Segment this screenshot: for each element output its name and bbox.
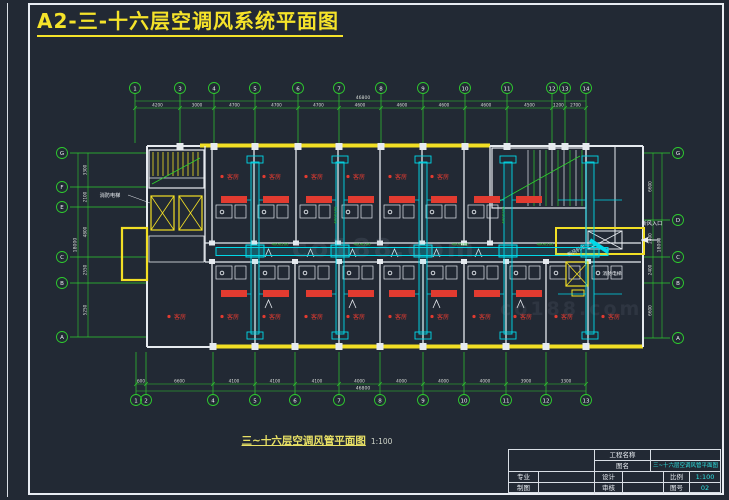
- grid-bubble-label: A: [60, 335, 64, 341]
- dim-text: 4600: [355, 103, 366, 108]
- grid-bubble-label: 1: [133, 86, 137, 92]
- column: [292, 259, 298, 264]
- room-mark: [346, 175, 349, 178]
- fan-coil-unit: [348, 196, 374, 203]
- room-mark: [346, 315, 349, 318]
- fan-coil-unit: [431, 290, 457, 297]
- grid-bubble-label: 12: [549, 86, 556, 92]
- project-name-value: [651, 450, 720, 461]
- dim-text: 4100: [229, 379, 240, 384]
- duct-size-label: 400X200: [333, 206, 338, 224]
- grid-bubble-label: 12: [543, 398, 550, 404]
- bathroom: [403, 205, 414, 218]
- fan-coil-unit: [474, 196, 500, 203]
- main-supply-duct: [216, 248, 608, 256]
- room-label: 客房: [174, 313, 186, 321]
- fixture: [472, 271, 476, 275]
- grid-bubble-label: 6: [293, 398, 297, 404]
- room-mark: [167, 315, 170, 318]
- column: [377, 343, 384, 350]
- room-label: 客房: [353, 173, 365, 181]
- dim-text: 4000: [396, 379, 407, 384]
- dim-text: 4600: [481, 103, 492, 108]
- column: [210, 343, 217, 350]
- grid-bubble-label: B: [676, 281, 680, 287]
- bathroom: [446, 266, 457, 279]
- room-label: 客房: [437, 173, 449, 181]
- room-mark: [304, 175, 307, 178]
- grid-bubble-label: 11: [503, 398, 510, 404]
- sheet-number-label: 图号: [664, 483, 690, 494]
- dim-text: 3900: [521, 379, 532, 384]
- fixture: [304, 210, 308, 214]
- bathroom: [277, 205, 288, 218]
- grid-bubble-label: 10: [461, 398, 468, 404]
- column: [378, 143, 385, 150]
- room-label: 客房: [311, 173, 323, 181]
- duct-junction: [499, 245, 517, 257]
- dim-text: 6600: [647, 181, 652, 192]
- fixture: [554, 271, 558, 275]
- dim-text: 4000: [480, 379, 491, 384]
- dim-text: 4500: [524, 103, 535, 108]
- grid-bubble-label: F: [60, 185, 63, 191]
- column: [583, 343, 590, 350]
- bathroom: [318, 266, 329, 279]
- column: [292, 343, 299, 350]
- grid-bubble-label: 9: [421, 398, 425, 404]
- drawing-name-value: 三~十六层空调风管平面图: [651, 461, 720, 472]
- specialty-value: [539, 472, 595, 483]
- dim-text: 4200: [152, 103, 163, 108]
- dim-text: 4700: [313, 103, 324, 108]
- room-mark: [554, 315, 557, 318]
- dim-total: 46800: [356, 95, 371, 101]
- room-mark: [262, 315, 265, 318]
- dim-total: 46800: [356, 386, 371, 392]
- column: [377, 259, 383, 264]
- drawing-sheet: A2-三-十六层空调风系统平面图 13456789101112131412456…: [0, 0, 729, 500]
- room-label: 客房: [311, 313, 323, 321]
- grid-bubble-label: 9: [421, 86, 425, 92]
- designer-label: 设计: [595, 472, 623, 483]
- column: [336, 143, 343, 150]
- grid-bubble-label: 13: [583, 398, 590, 404]
- bathroom: [361, 205, 372, 218]
- bathroom: [487, 266, 498, 279]
- room-mark: [220, 175, 223, 178]
- drafter-value: [539, 483, 595, 494]
- room-mark: [430, 315, 433, 318]
- reviewer-label: 审核: [595, 483, 623, 494]
- room-mark: [262, 175, 265, 178]
- grid-bubble-label: 13: [562, 86, 569, 92]
- dim-text: 4700: [271, 103, 282, 108]
- column: [543, 343, 550, 350]
- grid-bubble-label: 6: [296, 86, 300, 92]
- exterior-wall-accent: [212, 345, 643, 349]
- duct-size-label: 400X200: [271, 242, 289, 247]
- dim-text: 3300: [82, 164, 87, 175]
- room-mark: [304, 315, 307, 318]
- dim-text: 4700: [229, 103, 240, 108]
- project-name-label: 工程名称: [595, 450, 651, 461]
- bathroom: [278, 266, 289, 279]
- bathroom: [319, 205, 330, 218]
- bathroom: [529, 266, 540, 279]
- grid-bubble-label: 2: [144, 398, 148, 404]
- grid-bubble-label: 7: [337, 398, 341, 404]
- dim-text: 4800: [82, 226, 87, 237]
- column: [420, 343, 427, 350]
- column: [462, 143, 469, 150]
- sheet-number-value: 02: [690, 483, 720, 494]
- grid-bubble-label: 1: [134, 398, 138, 404]
- fan-coil-unit: [431, 196, 457, 203]
- left-annex-wall: [122, 228, 147, 280]
- room-label: 客房: [269, 173, 281, 181]
- duct-junction: [581, 245, 599, 257]
- grid-bubble-label: 4: [212, 86, 216, 92]
- room-label: 客房: [353, 313, 365, 321]
- break-mark: [265, 300, 272, 308]
- break-mark: [349, 300, 356, 308]
- drawing-name-label: 图名: [595, 461, 651, 472]
- grid-bubble-label: C: [676, 255, 680, 261]
- grid-bubble-label: A: [676, 336, 680, 342]
- room-label: 客房: [561, 313, 573, 321]
- fan-coil-unit: [306, 290, 332, 297]
- title-block: 工程名称 图名 三~十六层空调风管平面图 专业 设计 比例 1:100 制图 审…: [508, 449, 721, 493]
- fan-coil-unit: [516, 290, 542, 297]
- column: [562, 143, 569, 150]
- column: [461, 343, 468, 350]
- dim-text: 3300: [561, 379, 572, 384]
- room-mark: [601, 315, 604, 318]
- dim-text: 4000: [438, 379, 449, 384]
- exterior-wall-accent: [200, 144, 490, 148]
- column: [487, 241, 493, 246]
- dim-text: 5250: [82, 304, 87, 315]
- duct-size-label: 400X200: [451, 242, 469, 247]
- grid-bubble-label: 5: [253, 398, 257, 404]
- room-label: 客房: [608, 313, 620, 321]
- scale-value: 1:100: [690, 472, 720, 483]
- room-label: 客房: [227, 173, 239, 181]
- specialty-label: 专业: [509, 472, 539, 483]
- column: [252, 143, 259, 150]
- fixture: [262, 210, 266, 214]
- column: [295, 143, 302, 150]
- stair-left: [149, 150, 204, 188]
- column: [503, 343, 510, 350]
- titleblock-stamp-cell: [509, 450, 595, 472]
- dim-text: 4600: [397, 103, 408, 108]
- room-label: 客房: [395, 173, 407, 181]
- fan-coil-unit: [306, 196, 332, 203]
- grid-bubble-label: 10: [462, 86, 469, 92]
- room-label: 客房: [520, 313, 532, 321]
- room-label: 客房: [227, 313, 239, 321]
- fixture: [263, 271, 267, 275]
- fire-elevator-label: 消防电梯: [602, 270, 621, 277]
- grid-bubble-label: 8: [378, 398, 382, 404]
- grid-bubble-label: C: [60, 255, 64, 261]
- break-mark: [517, 300, 524, 308]
- room-mark: [472, 315, 475, 318]
- grid-bubble-label: 8: [379, 86, 383, 92]
- grid-bubble-label: G: [60, 151, 64, 157]
- dim-text: 2550: [82, 264, 87, 275]
- fan-coil-unit: [263, 290, 289, 297]
- dim-text: 2400: [647, 264, 652, 275]
- column: [377, 241, 383, 246]
- room-mark: [430, 175, 433, 178]
- column: [504, 143, 511, 150]
- grid-bubble-label: 3: [178, 86, 182, 92]
- fan-coil-unit: [389, 196, 415, 203]
- grid-bubble-label: 14: [583, 86, 590, 92]
- fixture: [220, 210, 224, 214]
- dim-text: 2100: [82, 191, 87, 202]
- column: [420, 143, 427, 150]
- duct-size-label: 400X200: [501, 206, 506, 224]
- dim-total: 18000: [72, 238, 78, 253]
- grid-bubble-label: 7: [337, 86, 341, 92]
- bathroom: [235, 266, 246, 279]
- dim-text: 4600: [439, 103, 450, 108]
- bathroom: [235, 205, 246, 218]
- grid-bubble-label: B: [60, 281, 64, 287]
- column: [209, 259, 215, 264]
- fixture: [346, 210, 350, 214]
- column: [543, 259, 549, 264]
- room-label: 客房: [437, 313, 449, 321]
- column: [252, 343, 259, 350]
- designer-value: [623, 472, 664, 483]
- column: [336, 343, 343, 350]
- room-mark: [220, 315, 223, 318]
- dim-text: 4100: [312, 379, 323, 384]
- fixture: [388, 271, 392, 275]
- fixture: [472, 210, 476, 214]
- dim-text: 4100: [270, 379, 281, 384]
- dim-text: 1200: [553, 103, 564, 108]
- column: [209, 241, 215, 246]
- column: [549, 143, 556, 150]
- bathroom: [362, 266, 373, 279]
- fan-coil-unit: [221, 290, 247, 297]
- room-label: 客房: [395, 313, 407, 321]
- fixture: [431, 271, 435, 275]
- dim-text: 6600: [174, 379, 185, 384]
- dim-text: 600: [137, 379, 145, 384]
- duct-junction: [246, 245, 264, 257]
- fan-coil-unit: [389, 290, 415, 297]
- grid-bubble-label: 11: [504, 86, 511, 92]
- room-mark: [513, 315, 516, 318]
- fan-coil-unit: [474, 290, 500, 297]
- duct-junction: [331, 245, 349, 257]
- drawing-caption: 三~十六层空调风管平面图1:100: [212, 429, 422, 448]
- duct-size-label: 400X200: [353, 242, 371, 247]
- caption-scale: 1:100: [371, 437, 393, 446]
- break-mark: [433, 300, 440, 308]
- caption-text: 三~十六层空调风管平面图: [242, 435, 366, 447]
- fresh-air-inlet-label: 新风入口: [642, 219, 663, 227]
- fixture: [596, 271, 600, 275]
- duct-junction: [414, 245, 432, 257]
- grid-bubble-label: G: [676, 151, 680, 157]
- equipment: [572, 290, 584, 296]
- column: [211, 143, 218, 150]
- column: [293, 241, 299, 246]
- dim-text: 2700: [570, 103, 581, 108]
- bathroom: [403, 266, 414, 279]
- fixture: [220, 271, 224, 275]
- fan-coil-unit: [263, 196, 289, 203]
- fire-elevator-label: 消防电梯: [100, 191, 121, 199]
- room-mark: [388, 315, 391, 318]
- floor-plan-canvas: 1345678910111213141245678910111213GFECBA…: [0, 0, 729, 500]
- fan-coil-unit: [516, 196, 542, 203]
- fixture: [430, 210, 434, 214]
- room-label: 客房: [269, 313, 281, 321]
- room-mark: [388, 175, 391, 178]
- fan-coil-unit: [221, 196, 247, 203]
- room-label: 客房: [479, 313, 491, 321]
- drafter-label: 制图: [509, 483, 539, 494]
- service-room: [149, 236, 204, 262]
- dim-text: 6600: [647, 305, 652, 316]
- fixture: [514, 271, 518, 275]
- reviewer-value: [623, 483, 664, 494]
- column: [177, 143, 184, 150]
- grid-bubble-label: D: [676, 218, 680, 224]
- grid-bubble-label: E: [60, 205, 64, 211]
- fixture: [303, 271, 307, 275]
- grid-bubble-label: 4: [211, 398, 215, 404]
- dim-text: 4000: [354, 379, 365, 384]
- fan-coil-unit: [348, 290, 374, 297]
- grid-bubble-label: 5: [253, 86, 257, 92]
- column: [461, 259, 467, 264]
- bathroom: [445, 205, 456, 218]
- dim-text: 3000: [192, 103, 203, 108]
- scale-label: 比例: [664, 472, 690, 483]
- fixture: [388, 210, 392, 214]
- fixture: [347, 271, 351, 275]
- dim-text: 2400: [647, 233, 652, 244]
- duct-size-label: 400X200: [536, 242, 554, 247]
